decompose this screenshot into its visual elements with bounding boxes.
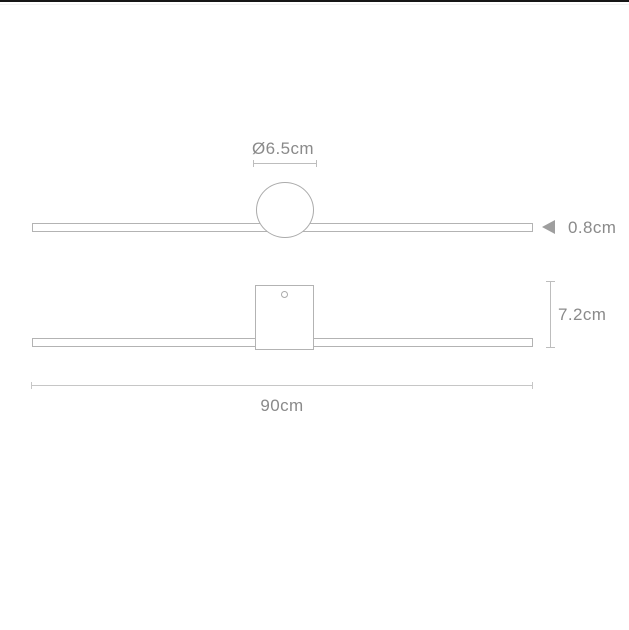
diameter-dimension-line <box>253 163 317 164</box>
height-label: 7.2cm <box>558 306 606 323</box>
length-dimension-tick-left <box>31 382 32 389</box>
diameter-dimension-tick-left <box>253 160 254 167</box>
height-dimension-tick-top <box>546 281 555 282</box>
mount-hole <box>281 291 288 298</box>
top-edge-line <box>0 0 629 2</box>
height-dimension-tick-bottom <box>546 347 555 348</box>
height-dimension-line <box>550 281 551 348</box>
length-dimension-tick-right <box>532 382 533 389</box>
diameter-label: Ø6.5cm <box>238 140 328 157</box>
diameter-dimension-tick-right <box>316 160 317 167</box>
wall-mount-plate <box>255 285 314 350</box>
length-label: 90cm <box>232 397 332 414</box>
length-dimension-line <box>31 385 533 386</box>
dimension-diagram: Ø6.5cm 0.8cm 7.2cm 90cm <box>0 0 629 630</box>
top-edge-shadow <box>0 4 629 5</box>
thickness-label: 0.8cm <box>568 219 616 236</box>
thickness-arrow-icon <box>542 220 555 234</box>
round-canopy-circle <box>256 182 314 238</box>
